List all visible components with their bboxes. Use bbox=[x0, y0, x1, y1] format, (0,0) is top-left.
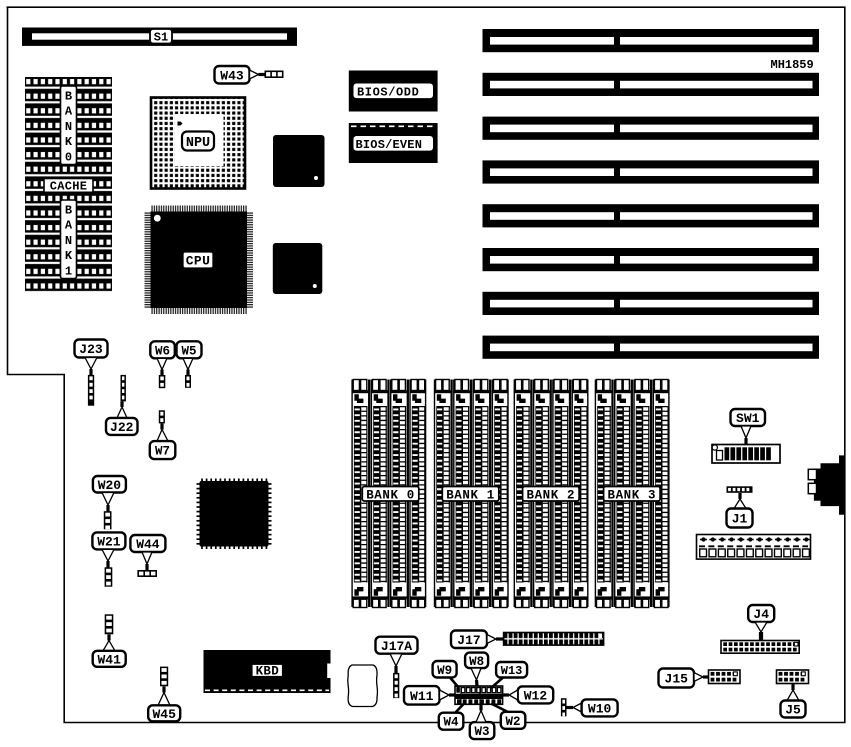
svg-text:W10: W10 bbox=[588, 702, 612, 717]
svg-text:W12: W12 bbox=[524, 689, 548, 704]
svg-text:B: B bbox=[65, 204, 72, 218]
svg-text:W8: W8 bbox=[469, 655, 484, 669]
svg-text:BIOS/ODD: BIOS/ODD bbox=[357, 86, 419, 100]
svg-text:J4: J4 bbox=[753, 607, 769, 622]
svg-text:K: K bbox=[65, 135, 73, 149]
svg-text:J22: J22 bbox=[110, 420, 134, 435]
svg-text:J1: J1 bbox=[732, 512, 748, 527]
svg-text:S1: S1 bbox=[154, 31, 168, 45]
svg-text:CACHE: CACHE bbox=[50, 180, 88, 194]
svg-text:W6: W6 bbox=[155, 344, 170, 358]
svg-text:W5: W5 bbox=[181, 344, 196, 358]
svg-text:BIOS/EVEN: BIOS/EVEN bbox=[356, 138, 423, 152]
svg-text:A: A bbox=[65, 105, 73, 119]
svg-text:W20: W20 bbox=[98, 478, 122, 493]
svg-text:W2: W2 bbox=[506, 715, 521, 729]
svg-text:0: 0 bbox=[65, 150, 72, 164]
svg-text:N: N bbox=[65, 120, 72, 134]
svg-text:NPU: NPU bbox=[186, 136, 210, 151]
svg-text:W13: W13 bbox=[501, 664, 523, 678]
svg-text:1: 1 bbox=[65, 264, 72, 278]
svg-text:B: B bbox=[65, 90, 72, 104]
svg-text:BANK 1: BANK 1 bbox=[446, 488, 495, 502]
svg-text:N: N bbox=[65, 234, 72, 248]
svg-text:J5: J5 bbox=[785, 703, 801, 718]
svg-text:J17: J17 bbox=[457, 633, 480, 648]
svg-text:W11: W11 bbox=[410, 689, 434, 704]
svg-text:W41: W41 bbox=[97, 652, 121, 667]
svg-text:CPU: CPU bbox=[186, 254, 211, 269]
svg-text:W7: W7 bbox=[155, 445, 170, 459]
svg-text:W43: W43 bbox=[220, 68, 244, 83]
svg-text:W45: W45 bbox=[152, 707, 176, 722]
svg-text:BANK 0: BANK 0 bbox=[366, 488, 415, 502]
svg-text:W9: W9 bbox=[437, 664, 452, 678]
svg-text:KBD: KBD bbox=[256, 665, 280, 679]
svg-text:BANK 2: BANK 2 bbox=[526, 488, 575, 502]
svg-text:J17A: J17A bbox=[381, 639, 412, 654]
svg-text:A: A bbox=[65, 219, 73, 233]
svg-text:K: K bbox=[65, 249, 73, 263]
svg-text:MH1859: MH1859 bbox=[771, 58, 814, 72]
svg-text:W44: W44 bbox=[136, 537, 160, 552]
svg-text:J15: J15 bbox=[665, 672, 689, 687]
svg-text:W3: W3 bbox=[475, 725, 490, 739]
svg-text:W21: W21 bbox=[97, 535, 121, 550]
svg-text:J23: J23 bbox=[79, 342, 103, 357]
svg-text:W4: W4 bbox=[444, 716, 460, 730]
svg-text:SW1: SW1 bbox=[736, 411, 760, 426]
svg-text:BANK 3: BANK 3 bbox=[607, 488, 656, 502]
